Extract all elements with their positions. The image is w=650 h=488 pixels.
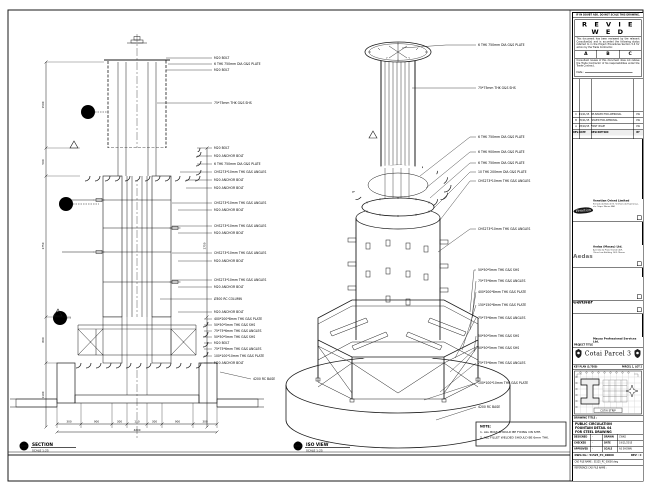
dim-text: 500 <box>41 159 45 164</box>
consultant-address: China Law Building 16/F, Macau <box>593 251 642 253</box>
section-label: 6 THK 750mm DIA G&S PLATE <box>214 62 261 66</box>
section-label: 50*50*5mm THK G&S SHS <box>214 323 255 327</box>
iso-labels: 6 THK 750mm DIA G&S PLATE 75*75mm THK G&… <box>478 43 530 409</box>
iso-label: 6 THK 750mm DIA G&S PLATE <box>478 43 525 47</box>
dwg-number: DWG No : 51525_PC_00000 <box>575 453 614 460</box>
rev-header-cell: BY <box>633 130 643 136</box>
section-label: 400*200*8mm THK G&S PLATE <box>214 317 262 321</box>
dim-text: 1500 <box>41 101 45 108</box>
note-line: 1. ALL BOLT SHOULD BE FIXING ON SITE. <box>480 430 541 434</box>
section-label: M20 BOLT <box>214 146 229 150</box>
note-heading: NOTE: <box>480 425 491 429</box>
field-label: APPROVED <box>573 446 591 452</box>
section-label: M20 BOLT <box>214 341 229 345</box>
section-labels: M20 BOLT 6 THK 750mm DIA G&S PLATE M20 B… <box>41 56 275 432</box>
key-plan-parcel: PARCEL 1, LOT 2 <box>622 365 642 370</box>
rev-date: 19/11/15 <box>579 112 591 118</box>
section-label: M20 ANCHOR BOLT <box>214 259 244 263</box>
section-label: M20 ANCHOR BOLT <box>214 154 244 158</box>
rev-date: 05/11/15 <box>579 118 591 124</box>
iso-label: 75*75*6mm THK G&S ANGLES <box>478 361 525 365</box>
date-rule <box>585 70 633 73</box>
rev-by: CW <box>633 118 643 124</box>
iso-label: 75*75mm THK G&S SHS <box>478 86 516 90</box>
iso-marker: B <box>296 441 299 446</box>
view-title-marks <box>20 442 351 451</box>
venetian-logo: Venetian <box>573 207 593 214</box>
stamp-date-line: Date : <box>575 69 641 75</box>
section-label: M20 ANCHOR BOLT <box>214 285 244 289</box>
stamp-paragraph: This document has been reviewed by the r… <box>575 37 641 50</box>
dim-text: 2750 <box>41 242 45 249</box>
reference-cad-file: REFERENCE CAD FILE NAME : <box>573 465 643 471</box>
project-banner: PROJECT TITLE Cotai Parcel 3 <box>573 343 643 365</box>
stamp-status-boxes: A B C <box>575 50 641 59</box>
iso-label: 6 THK 750mm DIA G&S PLATE <box>478 161 525 165</box>
section-label: Ø300 RC COLUMN <box>214 296 243 301</box>
status-box-b: B <box>597 51 619 59</box>
consultant-block: Aedas Aedas (Macau) Ltd. Avenida da Prai… <box>573 245 643 268</box>
rev-date: 28/10/15 <box>579 124 591 130</box>
field-label: SCALE <box>603 446 618 452</box>
stamp-paragraph: Consultant review of this document does … <box>575 59 641 69</box>
iso-label: 50*50*5mm THK G&S SHS <box>478 334 519 338</box>
iso-view <box>286 42 510 448</box>
dim-text: 900 <box>175 420 180 424</box>
section-label: M20 ANCHOR BOLT <box>214 231 244 235</box>
section-label: 50*50*5mm THK G&S SHS <box>214 335 255 339</box>
consultant-block: Venetian Venetian Orient Limited Estrada… <box>573 199 643 222</box>
review-checkbox <box>637 308 642 313</box>
drawing-title-block: DRAWING TITLE : PUBLIC CIRCULATION FOUNT… <box>573 416 643 481</box>
rev-desc: RE-ISSUED FOR APPROVAL <box>591 112 633 118</box>
sheet-note: IF IN DOUBT ASK. DO NOT SCALE THIS DRAWI… <box>573 13 643 18</box>
dim-text: 2750 <box>203 242 207 249</box>
emblem-icon <box>575 349 582 358</box>
stamp-title: R E V I E W E D <box>575 20 641 37</box>
iso-label: 75*75*6mm THK G&S ANGLES <box>478 279 525 283</box>
review-checkbox <box>637 295 642 300</box>
dwg-rev: REV : C <box>631 453 642 460</box>
rev-by: CW <box>633 124 643 130</box>
section-label: M20 ANCHOR BOLT <box>214 208 244 212</box>
iso-label: 6 THK 900mm DIA G&S PLATE <box>478 150 525 154</box>
dim-text: 300 <box>202 420 207 424</box>
iso-scale: SCALE 1:25 <box>306 449 323 453</box>
dim-text: 300 <box>117 420 122 424</box>
section-label: CHS273*10mm THK G&S ANGLES <box>214 201 266 205</box>
dim-text: 300 <box>66 420 71 424</box>
dim-text: 800 <box>41 337 45 342</box>
aedas-logo: Aedas <box>573 253 593 260</box>
section-label: M20 BOLT <box>214 56 229 60</box>
section-view <box>10 34 264 438</box>
section-label: 75*75*6mm THK G&S ANGLES <box>214 329 261 333</box>
revision-table: C 19/11/15 RE-ISSUED FOR APPROVAL CW B 0… <box>573 79 643 139</box>
dim-text: 900 <box>94 420 99 424</box>
empty-consultant-block <box>573 277 643 301</box>
section-label: M20 ANCHOR BOLT <box>214 178 244 182</box>
iso-label: 400*200*8mm THK G&S PLATE <box>478 290 526 294</box>
dim-text: 150 <box>134 420 139 424</box>
section-label: M20 ANCHOR BOLT <box>214 186 244 190</box>
dim-text: 300 <box>152 420 157 424</box>
rev-by: CW <box>633 112 643 118</box>
section-label: CHS273*10mm THK G&S ANGLES <box>214 278 266 282</box>
key-plan-footer: COTAI STRIP <box>600 408 616 412</box>
rev-desc: ISSUED FOR APPROVAL <box>591 118 633 124</box>
section-label: 4200 RC BASE <box>253 377 275 381</box>
iso-label: 10 THK 200mm DIA G&S PLATE <box>478 170 527 174</box>
section-label: CHS273*10mm THK G&S ANGLES <box>214 224 266 228</box>
iso-label: 75*75*6mm THK G&S ANGLES <box>478 316 525 320</box>
key-plan-map: COTAI STRIP <box>573 370 643 416</box>
review-checkbox <box>637 216 642 221</box>
iso-title: ISO VIEW <box>306 442 329 448</box>
reviewed-stamp: R E V I E W E D This document has been r… <box>573 18 643 79</box>
section-label: 75*75mm THK G&S SHS <box>214 101 252 105</box>
status-box-a: A <box>575 51 597 59</box>
title-block-column: IF IN DOUBT ASK. DO NOT SCALE THIS DRAWI… <box>572 12 643 481</box>
section-title: SECTION <box>32 442 53 448</box>
drawing-sheet: M20 BOLT 6 THK 750mm DIA G&S PLATE M20 B… <box>0 0 650 488</box>
field-value: AS SHOWN <box>618 446 643 452</box>
project-name: Cotai Parcel 3 <box>585 350 631 357</box>
iso-label: 150*150*8mm THK G&S PLATE <box>478 303 526 307</box>
iso-label: 50*50*5mm THK G&S SHS <box>478 268 519 272</box>
section-scale: SCALE 1:25 <box>32 449 49 453</box>
field-value: - <box>591 446 603 452</box>
iso-label: 50*50*5mm THK G&S SHS <box>478 346 519 350</box>
section-label: 100*100*10mm THK G&S PLATE <box>214 354 264 358</box>
date-label: Date : <box>577 71 585 74</box>
dim-text: 1100 <box>41 391 45 398</box>
section-label: M20 ANCHOR BOLT <box>214 310 244 314</box>
rev-header-cell: DESCRIPTION <box>591 130 633 136</box>
note-line: 2. ALL FILLET WELDED SHOULD BE 6mm THK. <box>480 436 549 440</box>
iso-label: 4200 RC BASE <box>478 405 500 409</box>
review-checkbox <box>637 262 642 267</box>
section-label: CHS273*10mm THK G&S ANGLES <box>214 251 266 255</box>
iso-label: 100*100*10mm THK G&S PLATE <box>478 381 528 385</box>
rev-desc: FIRST ISSUE <box>591 124 633 130</box>
key-plan-label: KEY PLAN (1:7500) <box>574 365 597 370</box>
iso-label: CHS273*10mm THK G&S ANGLES <box>478 227 530 231</box>
iso-label: 6 THK 750mm DIA G&S PLATE <box>478 135 525 139</box>
section-label: 6 THK 750mm DIA G&S PLATE <box>214 162 261 166</box>
section-label: M20 BOLT <box>214 68 229 72</box>
section-label: CHS273*10mm THK G&S ANGLES <box>214 170 266 174</box>
key-plan: KEY PLAN (1:7500) PARCEL 1, LOT 2 <box>573 365 643 416</box>
drawing-area: M20 BOLT 6 THK 750mm DIA G&S PLATE M20 B… <box>0 0 650 488</box>
dim-total: 4200 <box>134 428 141 432</box>
section-label: M20 ANCHOR BOLT <box>214 361 244 365</box>
emblem-icon <box>634 349 641 358</box>
status-box-c: C <box>619 51 641 59</box>
iso-label: CHS273*10mm THK G&S ANGLES <box>478 179 530 183</box>
drawing-fields: DESIGNED - DRAWN CWKO CHECKED - DATE 19/… <box>573 434 643 452</box>
consultant-address: s/n, Taipa, Macau SAR <box>593 205 642 207</box>
section-label: 75*75*6mm THK G&S ANGLES <box>214 347 261 351</box>
rev-header-cell: DATE <box>579 130 591 136</box>
